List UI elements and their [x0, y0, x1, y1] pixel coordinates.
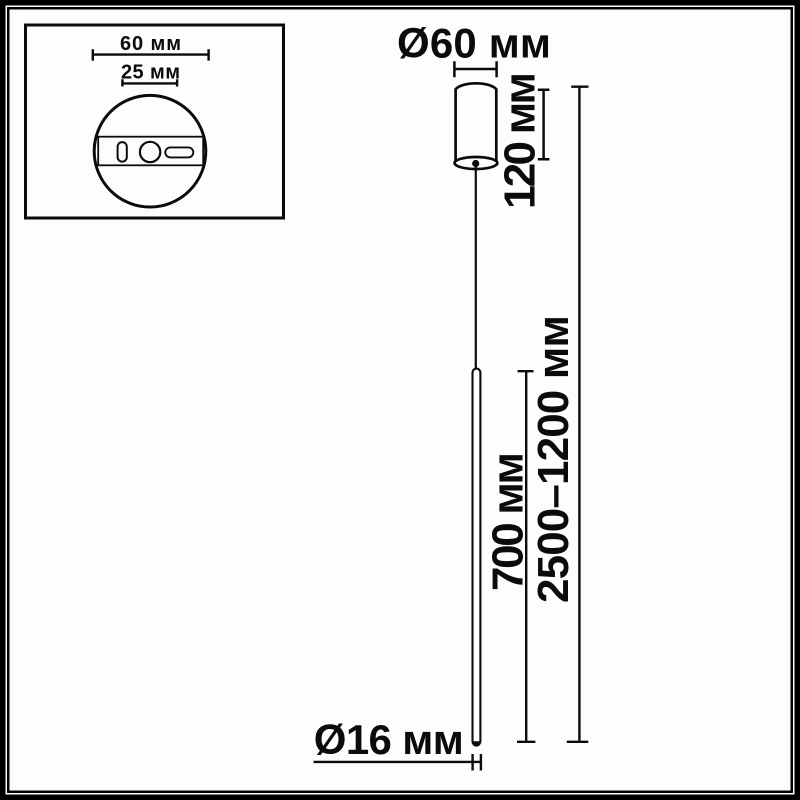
svg-text:60 мм: 60 мм: [120, 33, 181, 55]
svg-text:25 мм: 25 мм: [121, 62, 180, 84]
svg-text:120 мм: 120 мм: [496, 72, 545, 209]
svg-text:Ø16 мм: Ø16 мм: [314, 716, 464, 763]
svg-text:2500–1200 мм: 2500–1200 мм: [529, 315, 578, 603]
svg-text:Ø60 мм: Ø60 мм: [397, 20, 551, 67]
svg-text:700 мм: 700 мм: [484, 452, 533, 591]
